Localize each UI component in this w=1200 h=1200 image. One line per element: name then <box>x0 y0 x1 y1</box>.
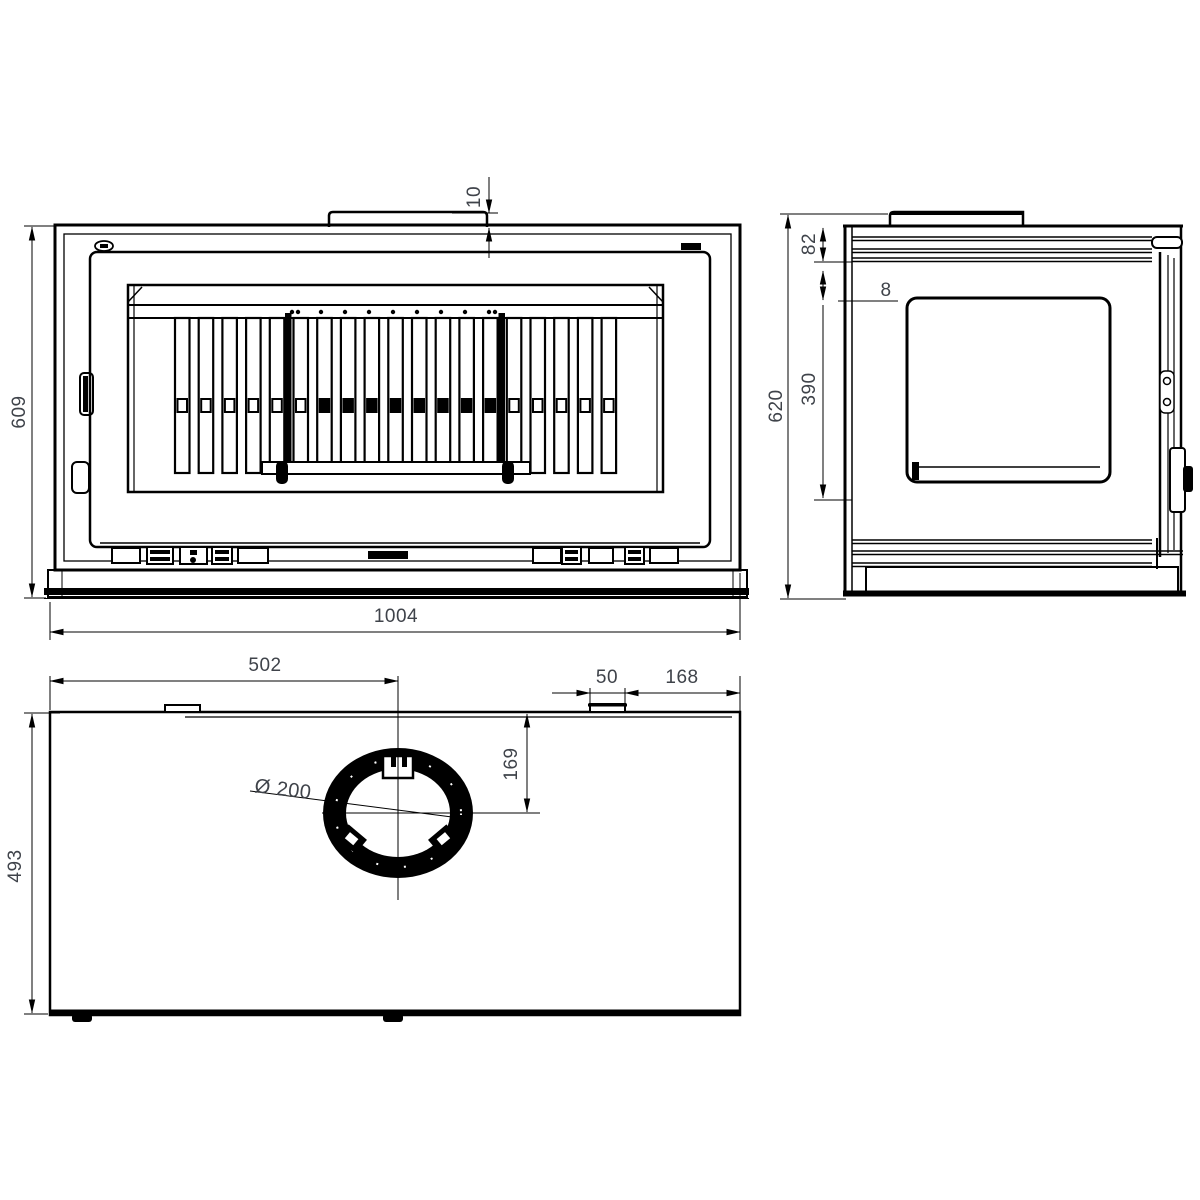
side-top-inset-label: 82 <box>799 233 820 255</box>
door-pivot-left-pin <box>100 244 108 248</box>
latch-knob <box>1183 466 1193 492</box>
drawing-background <box>0 0 1200 1200</box>
secondary-air-holes <box>290 310 497 314</box>
log-guard-left <box>285 313 292 462</box>
hinge-bolt-lower <box>1164 399 1171 406</box>
hinge-block-upper-fill <box>83 376 88 412</box>
door-pivot-right-pin <box>681 243 701 250</box>
retainer-peg-left <box>276 461 288 484</box>
log-guard-right <box>499 313 506 462</box>
top-center-from-left-label: 502 <box>248 655 281 676</box>
rear-tab-left <box>165 705 200 712</box>
front-height-label: 609 <box>9 395 30 428</box>
side-height-label: 620 <box>766 389 787 422</box>
side-top-plates <box>852 237 1152 262</box>
hinge-bolt-upper <box>1164 378 1171 385</box>
top-tab-width-label: 50 <box>596 667 618 688</box>
side-window-height-label: 390 <box>799 372 820 405</box>
flue-offset-label: 10 <box>464 186 485 208</box>
front-tab-center <box>383 1014 403 1022</box>
door-latch <box>1170 448 1185 512</box>
front-tab-left <box>72 1014 92 1022</box>
door-pivot-boss <box>1152 237 1182 248</box>
window-corner-mark <box>912 462 919 480</box>
top-depth-label: 493 <box>5 849 26 882</box>
log-retainer-plate <box>262 462 530 474</box>
top-center-from-front-label: 169 <box>501 747 522 780</box>
technical-drawing-page: 609 1004 10 620 82 8 390 502 50 168 169 … <box>0 0 1200 1200</box>
top-tab-to-edge-label: 168 <box>665 667 698 688</box>
side-gap-label: 8 <box>880 280 891 301</box>
front-width-label: 1004 <box>374 606 418 627</box>
stove-dimension-drawing: 609 1004 10 620 82 8 390 502 50 168 169 … <box>0 0 1200 1200</box>
retainer-peg-right <box>502 461 514 484</box>
